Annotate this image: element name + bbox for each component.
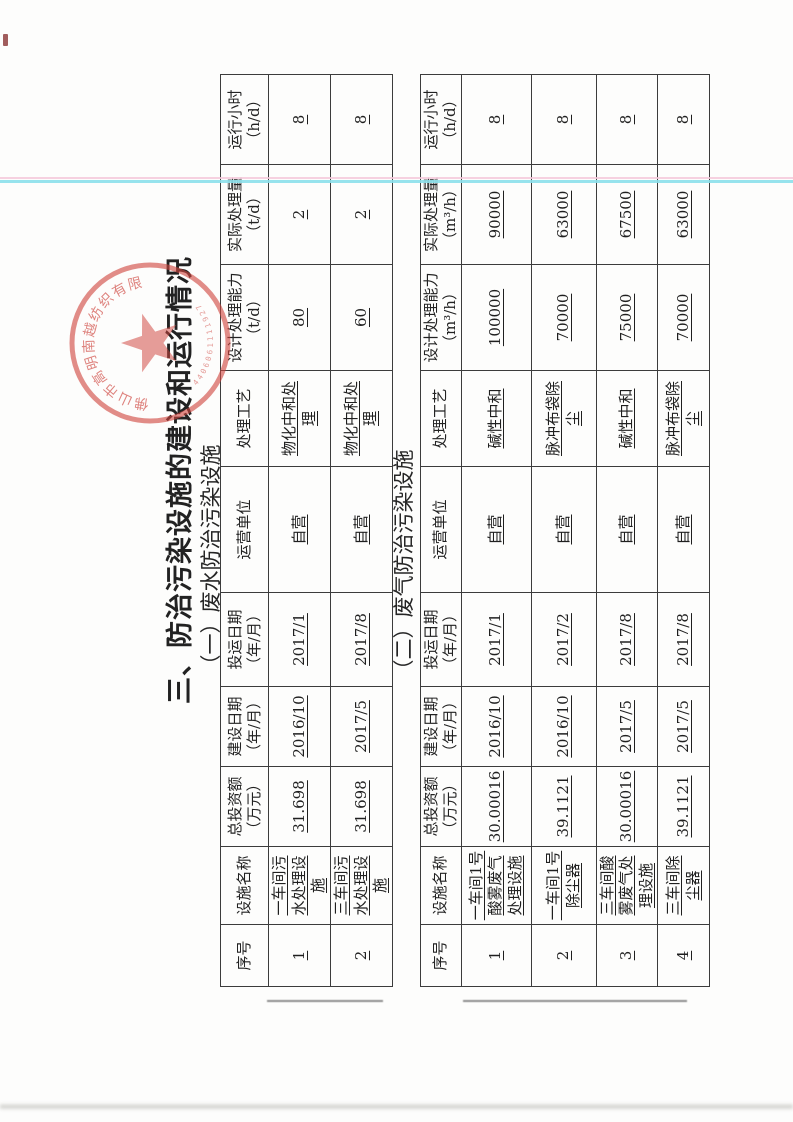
table-row: 2三车间污水处理设施31.6982017/52017/8自营物化中和处理6028 [331, 75, 393, 987]
table-cell: 2016/10 [531, 687, 596, 767]
column-header: 实际处理量（t/d） [221, 165, 269, 265]
cell-value: 物化中和处理 [342, 381, 380, 456]
column-header: 序号 [221, 925, 269, 987]
cell-value: 2016/10 [554, 695, 572, 757]
cell-value: 67500 [617, 191, 635, 239]
seal-serial-number: 4406061111927 [191, 301, 215, 387]
table-cell: 63000 [658, 165, 710, 265]
red-company-seal: 佛山市高明南越纺织有限公司 4406061111927 [66, 259, 234, 427]
cell-value: 8 [486, 115, 504, 125]
cell-value: 39.1121 [674, 775, 692, 837]
table-cell: 自营 [331, 467, 393, 593]
cell-value: 2016/10 [290, 695, 308, 757]
waste-gas-facilities-table: 序号设施名称总投资额（万元）建设日期（年/月）投运日期（年/月）运营单位处理工艺… [420, 74, 710, 987]
table-cell: 2 [269, 165, 331, 265]
cell-value: 自营 [486, 515, 504, 545]
table-cell: 一车间1号酸雾废气处理设施 [461, 847, 531, 925]
table-row: 3三车间酸雾废气处理设施30.000162017/52017/8自营碱性中和75… [596, 75, 658, 987]
wastewater-facilities-table: 序号设施名称总投资额（万元）建设日期（年/月）投运日期（年/月）运营单位处理工艺… [220, 74, 393, 987]
table-cell: 2017/8 [331, 593, 393, 687]
table-cell: 31.698 [269, 767, 331, 847]
table-cell: 1 [269, 925, 331, 987]
cell-value: 一车间1号除尘器 [544, 851, 582, 921]
table-cell: 三车间除尘器 [658, 847, 710, 925]
cell-value: 三车间酸雾废气处理设施 [598, 856, 655, 916]
section2-title: （二）废气防治污染设施 [388, 405, 414, 725]
cell-value: 自营 [674, 515, 692, 545]
cell-value: 70000 [674, 294, 692, 342]
table-cell: 自营 [461, 467, 531, 593]
cell-value: 39.1121 [554, 775, 572, 837]
column-header: 运行小时（h/d） [221, 75, 269, 165]
cell-value: 自营 [290, 515, 308, 545]
rotated-document-content: 三、防治污染设施的建设和运行情况 （一）废水防治污染设施 序号设施名称总投资额（… [160, 75, 705, 1010]
cell-value: 8 [674, 115, 692, 125]
table-cell: 2017/8 [658, 593, 710, 687]
table-cell: 物化中和处理 [331, 371, 393, 467]
cell-value: 8 [290, 115, 308, 125]
seal-star-icon [121, 314, 176, 372]
page-bottom-edge-shadow [0, 1103, 793, 1110]
table-row: 2一车间1号除尘器39.11212016/102017/2自营脉冲布袋除尘700… [531, 75, 596, 987]
cell-value: 30.00016 [617, 771, 635, 843]
column-header: 总投资额（万元） [421, 767, 462, 847]
cell-value: 2017/2 [554, 613, 572, 666]
cell-value: 碱性中和 [486, 389, 504, 449]
table-cell: 60 [331, 265, 393, 371]
cell-value: 脉冲布袋除尘 [664, 381, 702, 456]
header-row: 序号设施名称总投资额（万元）建设日期（年/月）投运日期（年/月）运营单位处理工艺… [221, 75, 269, 987]
cell-value: 4 [674, 951, 692, 961]
table-row: 1一车间污水处理设施31.6982016/102017/1自营物化中和处理802… [269, 75, 331, 987]
table-cell: 自营 [596, 467, 658, 593]
table-header-row: 序号设施名称总投资额（万元）建设日期（年/月）投运日期（年/月）运营单位处理工艺… [421, 75, 462, 987]
column-header: 运营单位 [221, 467, 269, 593]
table-body: 1一车间污水处理设施31.6982016/102017/1自营物化中和处理802… [269, 75, 393, 987]
cell-value: 2017/8 [617, 613, 635, 666]
column-header: 序号 [421, 925, 462, 987]
cell-value: 31.698 [290, 780, 308, 833]
table-cell: 39.1121 [658, 767, 710, 847]
table-cell: 3 [596, 925, 658, 987]
cell-value: 8 [617, 115, 635, 125]
column-header: 设施名称 [421, 847, 462, 925]
table-cell: 31.698 [331, 767, 393, 847]
cell-value: 2017/5 [617, 700, 635, 753]
table-cell: 8 [461, 75, 531, 165]
table-cell: 2017/5 [658, 687, 710, 767]
table-cell: 碱性中和 [461, 371, 531, 467]
table-cell: 2016/10 [269, 687, 331, 767]
table-cell: 2017/5 [596, 687, 658, 767]
cell-value: 30.00016 [486, 771, 504, 843]
table-cell: 2017/5 [331, 687, 393, 767]
table-cell: 8 [596, 75, 658, 165]
table-cell: 2017/1 [269, 593, 331, 687]
column-header: 运行小时（h/d） [421, 75, 462, 165]
cell-value: 63000 [674, 191, 692, 239]
cell-value: 75000 [617, 294, 635, 342]
table-cell: 2017/8 [596, 593, 658, 687]
table-cell: 一车间污水处理设施 [269, 847, 331, 925]
table-cell: 脉冲布袋除尘 [658, 371, 710, 467]
cell-value: 自营 [352, 515, 370, 545]
cell-value: 70000 [554, 294, 572, 342]
cell-value: 2017/1 [486, 613, 504, 666]
column-header: 总投资额（万元） [221, 767, 269, 847]
column-header: 实际处理量（m³/h） [421, 165, 462, 265]
table-cell: 三车间酸雾废气处理设施 [596, 847, 658, 925]
table-cell: 30.00016 [461, 767, 531, 847]
column-header: 运营单位 [421, 467, 462, 593]
column-header: 处理工艺 [421, 371, 462, 467]
table-cell: 80 [269, 265, 331, 371]
table-cell: 2 [331, 925, 393, 987]
cell-value: 2017/5 [352, 700, 370, 753]
column-header: 投运日期（年/月） [221, 593, 269, 687]
cell-value: 2017/8 [674, 613, 692, 666]
table-row: 4三车间除尘器39.11212017/52017/8自营脉冲布袋除尘700006… [658, 75, 710, 987]
seal-company-name: 佛山市高明南越纺织有限公司 [66, 275, 150, 427]
table-body: 1一车间1号酸雾废气处理设施30.000162016/102017/1自营碱性中… [461, 75, 710, 987]
cell-value: 80 [290, 308, 308, 327]
table-cell: 90000 [461, 165, 531, 265]
table-cell: 2 [531, 925, 596, 987]
cell-value: 2 [290, 210, 308, 220]
table-cell: 8 [269, 75, 331, 165]
cell-value: 脉冲布袋除尘 [544, 381, 582, 456]
table-cell: 1 [461, 925, 531, 987]
table-cell: 2017/1 [461, 593, 531, 687]
cell-value: 1 [290, 951, 308, 961]
table-cell: 三车间污水处理设施 [331, 847, 393, 925]
table-cell: 8 [331, 75, 393, 165]
table-row: 1一车间1号酸雾废气处理设施30.000162016/102017/1自营碱性中… [461, 75, 531, 987]
table-cell: 67500 [596, 165, 658, 265]
table-cell: 物化中和处理 [269, 371, 331, 467]
table-cell: 2017/2 [531, 593, 596, 687]
table-header-row: 序号设施名称总投资额（万元）建设日期（年/月）投运日期（年/月）运营单位处理工艺… [221, 75, 269, 987]
table-cell: 70000 [658, 265, 710, 371]
cell-value: 3 [617, 951, 635, 961]
table-cell: 4 [658, 925, 710, 987]
cell-value: 90000 [486, 191, 504, 239]
cell-value: 2 [352, 951, 370, 961]
cell-value: 自营 [617, 515, 635, 545]
cell-value: 60 [352, 308, 370, 327]
cell-value: 三车间污水处理设施 [332, 856, 389, 916]
table-cell: 自营 [269, 467, 331, 593]
cell-value: 2016/10 [486, 695, 504, 757]
header-row: 序号设施名称总投资额（万元）建设日期（年/月）投运日期（年/月）运营单位处理工艺… [421, 75, 462, 987]
table-cell: 脉冲布袋除尘 [531, 371, 596, 467]
table-cell: 8 [531, 75, 596, 165]
cell-value: 2017/5 [674, 700, 692, 753]
cell-value: 一车间1号酸雾废气处理设施 [467, 851, 524, 921]
table-cell: 2016/10 [461, 687, 531, 767]
table-cell: 63000 [531, 165, 596, 265]
column-header: 设计处理能力（m³/h） [421, 265, 462, 371]
cell-value: 2017/8 [352, 613, 370, 666]
column-header: 建设日期（年/月） [421, 687, 462, 767]
scanned-document-page: 三、防治污染设施的建设和运行情况 （一）废水防治污染设施 序号设施名称总投资额（… [0, 0, 793, 1122]
table-cell: 70000 [531, 265, 596, 371]
cell-value: 2017/1 [290, 613, 308, 666]
cell-value: 物化中和处理 [280, 381, 318, 456]
table-cell: 39.1121 [531, 767, 596, 847]
cell-value: 自营 [554, 515, 572, 545]
column-header: 设施名称 [221, 847, 269, 925]
cell-value: 31.698 [352, 780, 370, 833]
table-cell: 自营 [658, 467, 710, 593]
cell-value: 8 [554, 115, 572, 125]
table-cell: 一车间1号除尘器 [531, 847, 596, 925]
cell-value: 63000 [554, 191, 572, 239]
cell-value: 2 [352, 210, 370, 220]
cell-value: 2 [554, 951, 572, 961]
column-header: 建设日期（年/月） [221, 687, 269, 767]
section1-title: （一）废水防治污染设施 [195, 400, 221, 720]
table-cell: 自营 [531, 467, 596, 593]
cell-value: 三车间除尘器 [664, 856, 702, 916]
table-cell: 30.00016 [596, 767, 658, 847]
cell-value: 一车间污水处理设施 [270, 856, 327, 916]
cell-value: 8 [352, 115, 370, 125]
table-cell: 碱性中和 [596, 371, 658, 467]
table-cell: 75000 [596, 265, 658, 371]
table-cell: 100000 [461, 265, 531, 371]
cell-value: 碱性中和 [617, 389, 635, 449]
cell-value: 100000 [486, 289, 504, 346]
cell-value: 1 [486, 951, 504, 961]
table-cell: 8 [658, 75, 710, 165]
red-corner-mark [3, 34, 8, 46]
column-header: 投运日期（年/月） [421, 593, 462, 687]
table-cell: 2 [331, 165, 393, 265]
